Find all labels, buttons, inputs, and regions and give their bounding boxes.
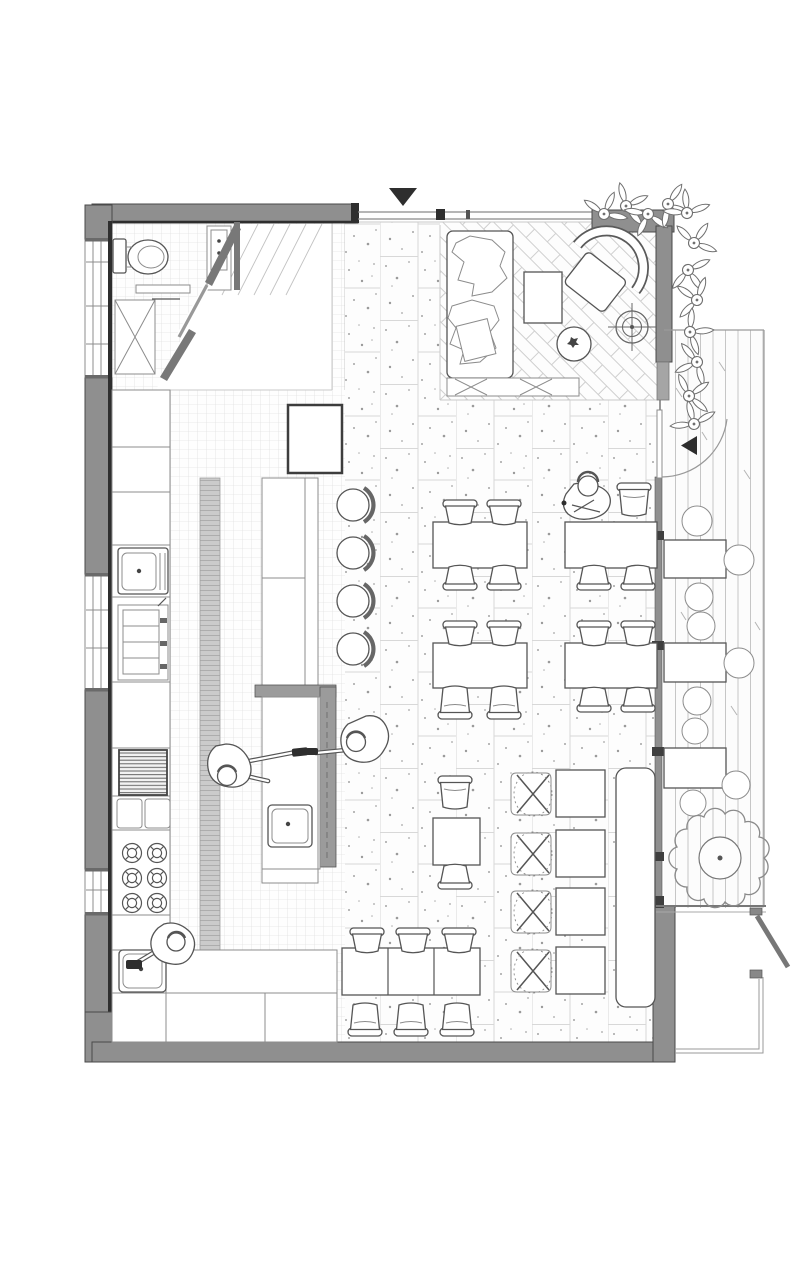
left-window-3 [85,870,112,915]
toilet [113,239,168,274]
held-tray [292,747,309,757]
chair [442,928,476,953]
outdoor-chair [685,583,713,611]
prep-appliance [118,598,168,680]
chair [621,621,655,646]
plant-sprig [672,217,722,255]
bottom-wall [92,1042,675,1062]
bottom-right-corner-wall [653,906,675,1062]
tap-dot [137,569,141,573]
cross-back-chair [511,949,552,993]
chair [617,483,651,516]
left-window-1 [85,240,112,378]
outdoor-table [664,643,726,682]
chair [443,500,477,525]
counter-overhang [305,478,318,688]
wall-joint [85,912,112,916]
chair [443,565,477,590]
floor-plan-page: Cafe restaurant floor plan - top view li… [0,0,800,1271]
top-wall [92,204,358,223]
left-wall-segment [85,690,112,870]
left-wall-segment [85,205,112,240]
outdoor-chair [683,687,711,715]
grill-hood [119,750,167,795]
dining-table [565,522,657,568]
outdoor-chair [724,545,754,575]
bar-equipment-box [288,405,342,473]
chair [394,1003,428,1036]
basin-tap [217,239,221,243]
chair [621,687,655,712]
door-leaf [657,410,662,478]
banquette-table [556,947,605,994]
left-window-2 [85,575,112,690]
burner-module [145,799,170,828]
wall-end-cap [351,203,359,223]
kitchen-drain-channel [200,478,220,1002]
outdoor-chair [687,612,715,640]
wall-banquette [616,768,655,1007]
lounge-right-wall [656,226,672,362]
chair [440,1003,474,1036]
cross-back-chair [511,772,552,816]
bar-stool [337,584,373,618]
outdoor-chair [682,718,708,744]
held-dish [126,960,142,969]
chair [443,621,477,646]
cross-back-chair [511,832,552,876]
table-row [342,948,480,995]
outdoor-table [664,748,726,788]
left-wall-inner-face [108,221,112,1042]
chair [438,686,472,719]
banquette-table [556,830,605,877]
dining-table [565,643,657,688]
outdoor-chair [724,648,754,678]
entrance-arrow-icon [389,188,417,206]
wall-joint [85,868,112,872]
wall-joint [85,688,112,692]
chair [487,686,521,719]
wall-joint [85,375,112,379]
held-cup [306,748,318,755]
bar-stool [337,488,373,522]
floor-plan-drawing: Cafe restaurant floor plan - top view li… [0,0,800,1271]
burner-module [117,799,142,828]
bar-stool [337,632,373,666]
counter-shelf [262,869,318,883]
toilet-cistern [113,239,126,273]
banquette-table [556,770,605,817]
outdoor-chair [680,790,706,816]
toilet-bowl [128,240,168,274]
gate-leaf [757,916,788,967]
tap-dot [286,822,290,826]
outdoor-chair [682,506,712,536]
chair [577,687,611,712]
chair [350,928,384,953]
chair [348,1003,382,1036]
rear-gate [675,908,788,1053]
prep-sink [118,548,168,594]
two-seat-table [433,818,480,865]
service-sink [268,805,312,847]
dining-table [433,522,527,568]
chair [577,621,611,646]
wall-joint [85,573,112,577]
gate-hinge [750,908,762,915]
front-counter [262,478,305,688]
tree-trunk-center [718,856,723,861]
chair [438,776,472,809]
outdoor-table [664,540,726,578]
courtyard-boundary [675,977,763,1053]
low-bench [447,378,579,396]
service-counter-back [320,687,336,867]
coffee-table [524,272,562,323]
chair [487,621,521,646]
storefront-mullion [436,209,445,220]
chair [396,928,430,953]
left-wall-segment [85,378,112,575]
chair [577,565,611,590]
wc-shelf [136,285,190,293]
cross-back-chair [511,890,552,934]
storefront-tick [466,210,470,219]
wall-joint [85,238,112,242]
plant-sprig [670,248,719,303]
chair [487,565,521,590]
wall-pier [657,362,669,400]
gate-stop [750,970,762,978]
banquette-table [556,888,605,935]
dining-table [433,643,527,688]
annotations [389,188,417,206]
chair [487,500,521,525]
mullion [652,747,664,756]
storefront-glazing [358,212,596,219]
cup-on-table [562,501,567,506]
bar-stool [337,536,373,570]
chair [621,565,655,590]
outdoor-chair [722,771,750,799]
chair [438,864,472,889]
